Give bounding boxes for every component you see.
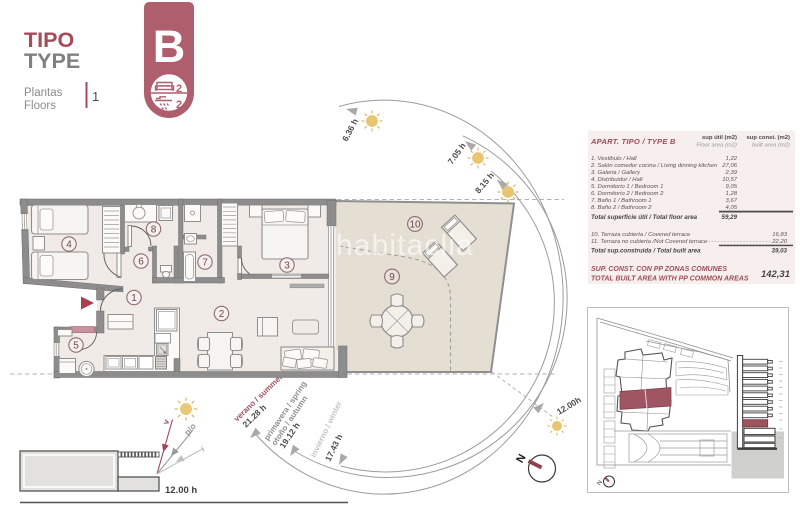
svg-text:142,31: 142,31 <box>761 269 790 280</box>
svg-text:1,28: 1,28 <box>726 191 738 197</box>
svg-text:1,22: 1,22 <box>726 156 738 162</box>
svg-text:built area (m2): built area (m2) <box>752 143 790 149</box>
svg-text:Floor area (m2): Floor area (m2) <box>696 143 737 149</box>
svg-text:7: 7 <box>202 258 208 269</box>
svg-text:5. Dormitorio 1 / Bedroom 1: 5. Dormitorio 1 / Bedroom 1 <box>591 184 663 190</box>
svg-text:10,57: 10,57 <box>722 177 737 183</box>
svg-text:7. Baño 1 / Bathroom 1: 7. Baño 1 / Bathroom 1 <box>591 198 652 204</box>
svg-text:1: 1 <box>131 293 137 304</box>
svg-text:8. Baño 2 / Bathroom 2: 8. Baño 2 / Bathroom 2 <box>591 205 652 211</box>
svg-text:2,39: 2,39 <box>725 170 738 176</box>
svg-text:Floors: Floors <box>24 100 56 112</box>
svg-text:APART. TIPO / TYPE B: APART. TIPO / TYPE B <box>590 137 676 146</box>
svg-text:27,06: 27,06 <box>721 163 737 169</box>
svg-text:9,05: 9,05 <box>726 184 738 190</box>
svg-text:Total superficie útil / Total: Total superficie útil / Total floor area <box>591 214 698 221</box>
svg-text:B: B <box>153 21 186 72</box>
svg-text:1: 1 <box>92 89 99 104</box>
svg-text:2: 2 <box>176 99 182 111</box>
svg-text:Plantas: Plantas <box>24 87 63 99</box>
svg-text:2: 2 <box>219 309 225 320</box>
svg-text:22,20: 22,20 <box>771 239 787 245</box>
svg-text:2: 2 <box>176 83 182 95</box>
svg-text:4,05: 4,05 <box>726 205 738 211</box>
svg-text:12.00 h: 12.00 h <box>165 485 197 496</box>
svg-text:3: 3 <box>284 261 290 272</box>
svg-text:SUP. CONST. CON PP ZONAS COMUN: SUP. CONST. CON PP ZONAS COMUNES <box>591 266 727 273</box>
svg-text:sup útil (m2): sup útil (m2) <box>702 135 737 141</box>
svg-text:3,67: 3,67 <box>726 198 738 204</box>
svg-text:6. Dormitorio 2 / Bedroom 2: 6. Dormitorio 2 / Bedroom 2 <box>591 191 664 197</box>
svg-text:5: 5 <box>73 341 79 352</box>
svg-text:habitaclia: habitaclia <box>336 229 474 262</box>
svg-text:1. Vestibulo / Hall: 1. Vestibulo / Hall <box>591 156 637 162</box>
svg-text:16,83: 16,83 <box>772 232 787 238</box>
svg-text:6: 6 <box>138 257 144 268</box>
svg-text:TYPE: TYPE <box>24 49 80 73</box>
svg-text:11. Terraza no cubierta /Not C: 11. Terraza no cubierta /Not Covered ter… <box>591 239 708 245</box>
svg-text:4. Distribuidor / Hall: 4. Distribuidor / Hall <box>591 177 643 183</box>
svg-text:sup const. (m2): sup const. (m2) <box>746 135 790 141</box>
svg-text:TOTAL BUILT AREA WITH PP COMMO: TOTAL BUILT AREA WITH PP COMMON AREAS <box>591 276 749 283</box>
svg-text:9: 9 <box>389 272 395 283</box>
svg-text:3. Galeria / Gallery: 3. Galeria / Gallery <box>591 170 641 176</box>
svg-text:Total sup.construida / Total b: Total sup.construida / Total built area <box>591 248 701 255</box>
svg-text:4: 4 <box>66 240 72 251</box>
svg-text:8: 8 <box>151 225 157 236</box>
svg-text:10. Terraza cubierta / Covered: 10. Terraza cubierta / Covered terrace <box>591 232 691 238</box>
svg-text:39,03: 39,03 <box>772 248 788 255</box>
svg-text:59,29: 59,29 <box>722 214 738 221</box>
svg-text:2. Salón comedor cocina / Livi: 2. Salón comedor cocina / Living dinning… <box>590 163 718 169</box>
